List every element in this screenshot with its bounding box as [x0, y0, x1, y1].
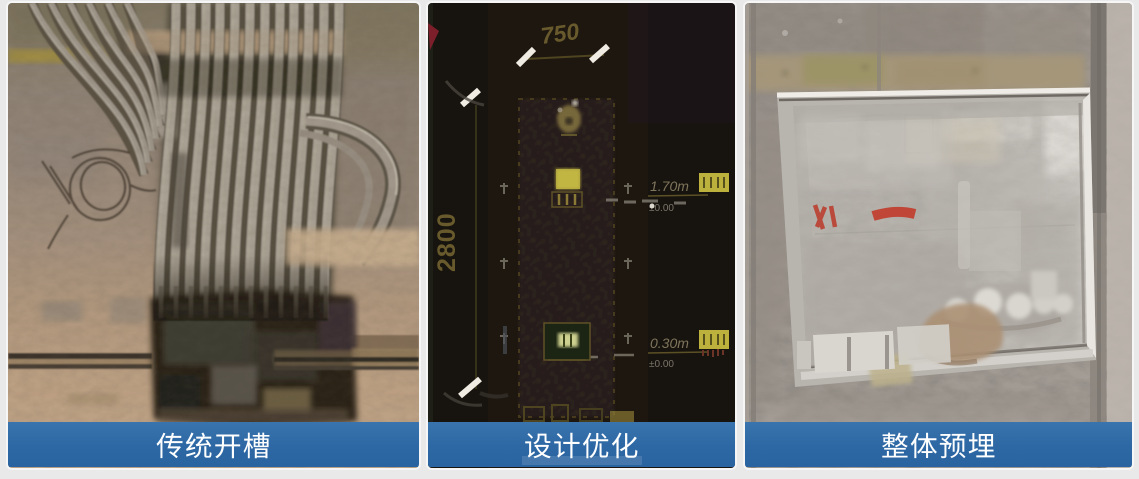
svg-text:750: 750: [539, 18, 581, 49]
svg-text:1.70m: 1.70m: [650, 178, 689, 194]
svg-text:0.30m: 0.30m: [650, 335, 689, 351]
svg-text:2800: 2800: [433, 212, 461, 272]
svg-text:±0.00: ±0.00: [649, 359, 674, 370]
